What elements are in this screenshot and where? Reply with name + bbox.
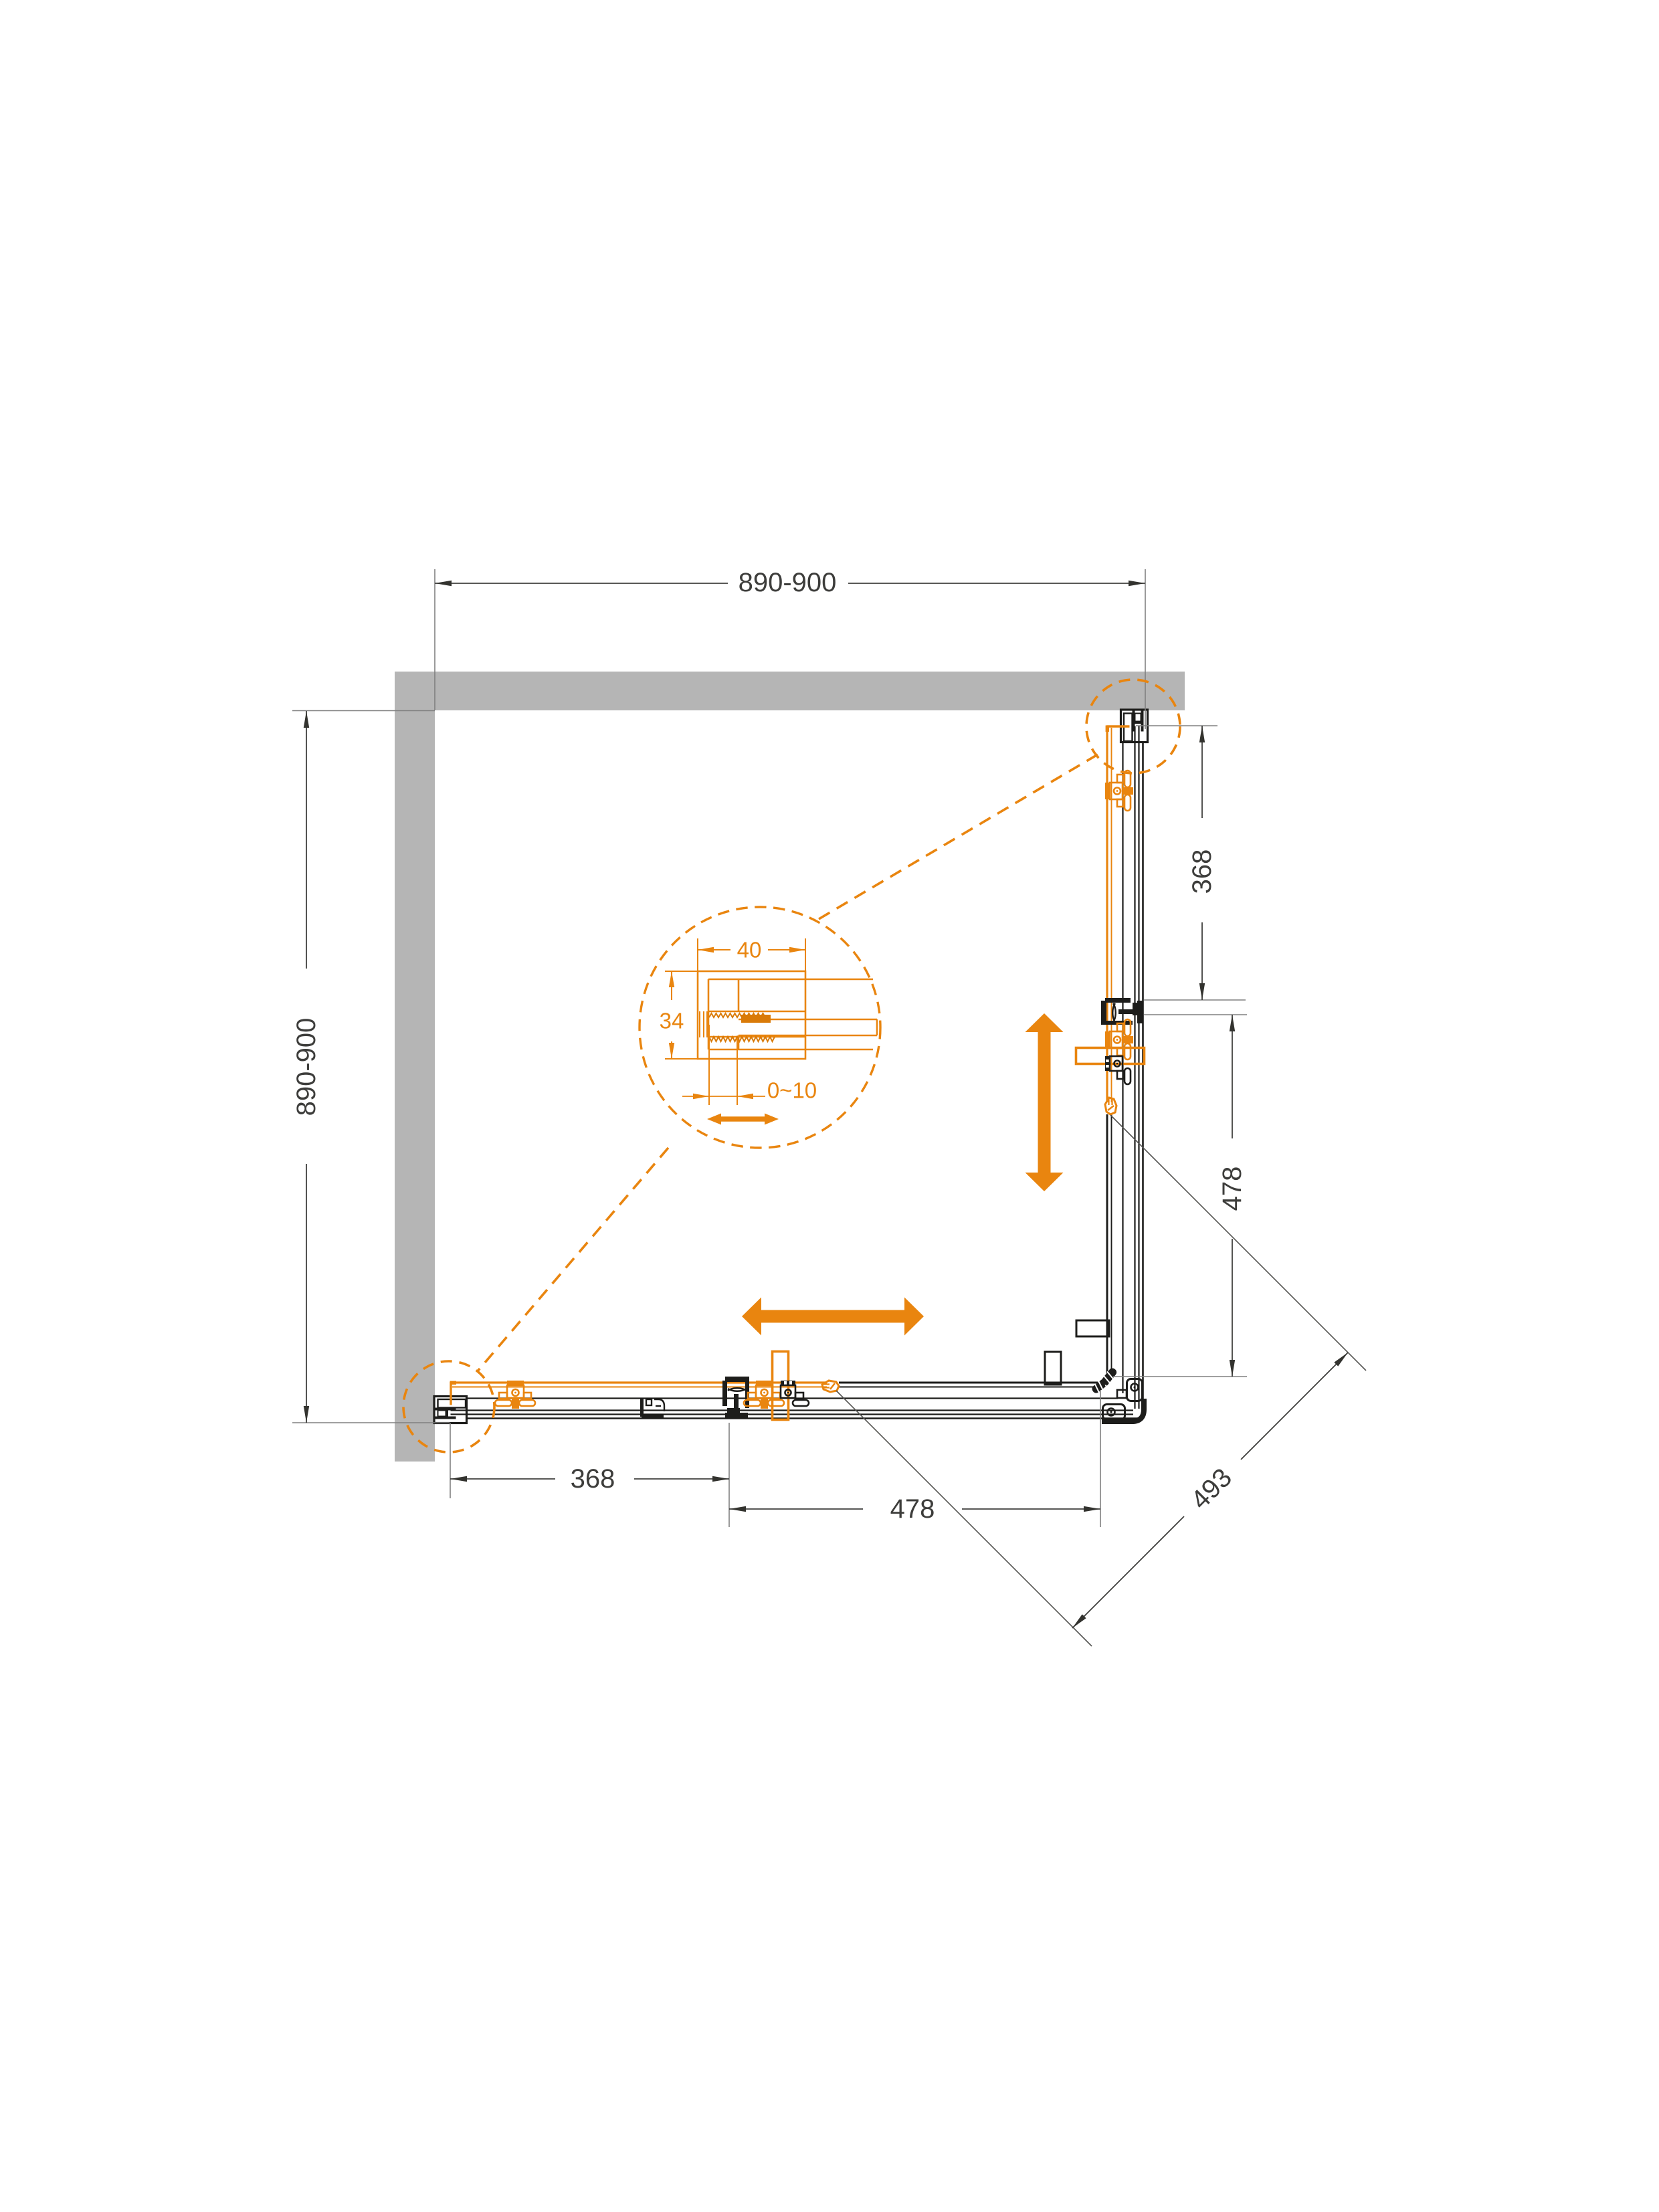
- svg-text:0~10: 0~10: [767, 1078, 817, 1103]
- svg-text:368: 368: [571, 1464, 615, 1494]
- svg-text:890-900: 890-900: [739, 568, 837, 597]
- svg-text:368: 368: [1187, 849, 1217, 894]
- svg-text:478: 478: [890, 1494, 935, 1524]
- svg-text:890-900: 890-900: [292, 1018, 321, 1116]
- svg-text:40: 40: [737, 938, 762, 963]
- svg-text:478: 478: [1217, 1167, 1247, 1211]
- svg-text:34: 34: [660, 1009, 684, 1033]
